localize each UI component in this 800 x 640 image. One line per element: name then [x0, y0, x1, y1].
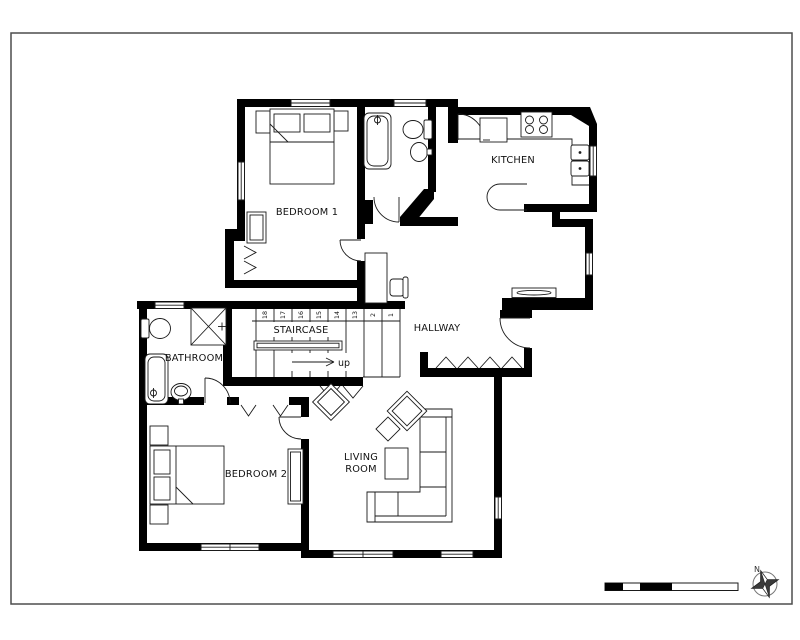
room-label-kitchen: KITCHEN: [491, 155, 535, 166]
window: [394, 100, 426, 107]
room-label-living-room-line1: LIVING: [344, 452, 378, 463]
door-arc: [500, 318, 530, 348]
stair-step-number: 13: [352, 311, 359, 319]
door-arc: [340, 240, 361, 261]
stair-step-number: 2: [370, 313, 377, 317]
stair-step-number: 16: [298, 311, 305, 319]
bathtub-symbol: [364, 113, 391, 169]
room-label-bedroom2: BEDROOM 2: [225, 469, 287, 480]
closet-chevron: [458, 357, 478, 368]
toilet-symbol: [403, 120, 432, 139]
stair-direction-label: up: [338, 358, 350, 369]
stair-step-number: 17: [280, 311, 287, 319]
living-room-furniture: [313, 384, 452, 522]
toilet-symbol: [141, 319, 171, 339]
kitchen-sink-symbol: [571, 145, 589, 176]
window: [586, 253, 593, 275]
stair-step-numbers: 18 17 16 15 14 13 2 1: [262, 311, 395, 319]
coffee-table-symbol: [385, 448, 408, 479]
nightstand-symbol: [256, 111, 270, 133]
closet-chevron: [436, 357, 456, 368]
window: [495, 497, 502, 519]
compass-rose: N: [747, 565, 782, 602]
bedroom1-furniture: [247, 109, 348, 243]
window: [201, 544, 259, 551]
window: [441, 551, 473, 558]
closet-chevron: [244, 261, 256, 274]
closet-chevron: [502, 357, 522, 368]
stair-step-number: 14: [334, 311, 341, 319]
desk-symbol: [365, 253, 387, 303]
door-arc: [279, 417, 301, 439]
console-shelf-symbol: [512, 288, 556, 298]
armchair-symbol: [313, 384, 350, 421]
room-label-staircase: STAIRCASE: [273, 325, 328, 336]
closet-chevron: [244, 246, 256, 259]
room-label-hallway: HALLWAY: [414, 323, 461, 334]
wardrobe-symbol: [288, 449, 303, 504]
stair-step-number: 15: [316, 311, 323, 319]
stair-step-number: 18: [262, 311, 269, 319]
north-label: N: [754, 565, 760, 574]
closet-chevron: [343, 386, 363, 398]
scale-bar: [605, 583, 738, 591]
closet-chevron: [241, 405, 256, 416]
bathroom2-fixtures: [364, 113, 432, 169]
stove-symbol: [521, 112, 552, 137]
window: [333, 551, 393, 558]
closet-box-symbol: [247, 212, 266, 243]
nightstand-symbol: [150, 426, 168, 445]
room-label-bedroom1: BEDROOM 1: [276, 207, 338, 218]
room-label-living-room-line2: ROOM: [345, 464, 376, 475]
room-label-bathroom: BATHROOM: [165, 353, 223, 364]
page: 18 17 16 15 14 13 2 1 up: [0, 0, 800, 640]
bed-symbol: [150, 446, 224, 504]
nightstand-symbol: [150, 505, 168, 524]
shower-symbol: [191, 308, 226, 345]
dishwasher-symbol: [480, 118, 507, 142]
bed-symbol: [270, 109, 334, 184]
window: [238, 162, 245, 200]
window: [155, 302, 184, 309]
stair-step-number: 1: [388, 313, 395, 317]
nightstand-symbol: [334, 111, 348, 131]
closet-chevron: [273, 405, 288, 416]
window: [590, 146, 597, 176]
stair-handrail: [254, 341, 342, 350]
closet-chevron: [480, 357, 500, 368]
chair-symbol: [390, 277, 408, 298]
peninsula-counter: [487, 184, 527, 210]
hallway-furniture: [365, 253, 556, 303]
door-arc: [374, 197, 399, 222]
floor-plan: 18 17 16 15 14 13 2 1 up: [0, 0, 800, 640]
staircase: 18 17 16 15 14 13 2 1 up: [252, 309, 400, 377]
window: [291, 100, 330, 107]
